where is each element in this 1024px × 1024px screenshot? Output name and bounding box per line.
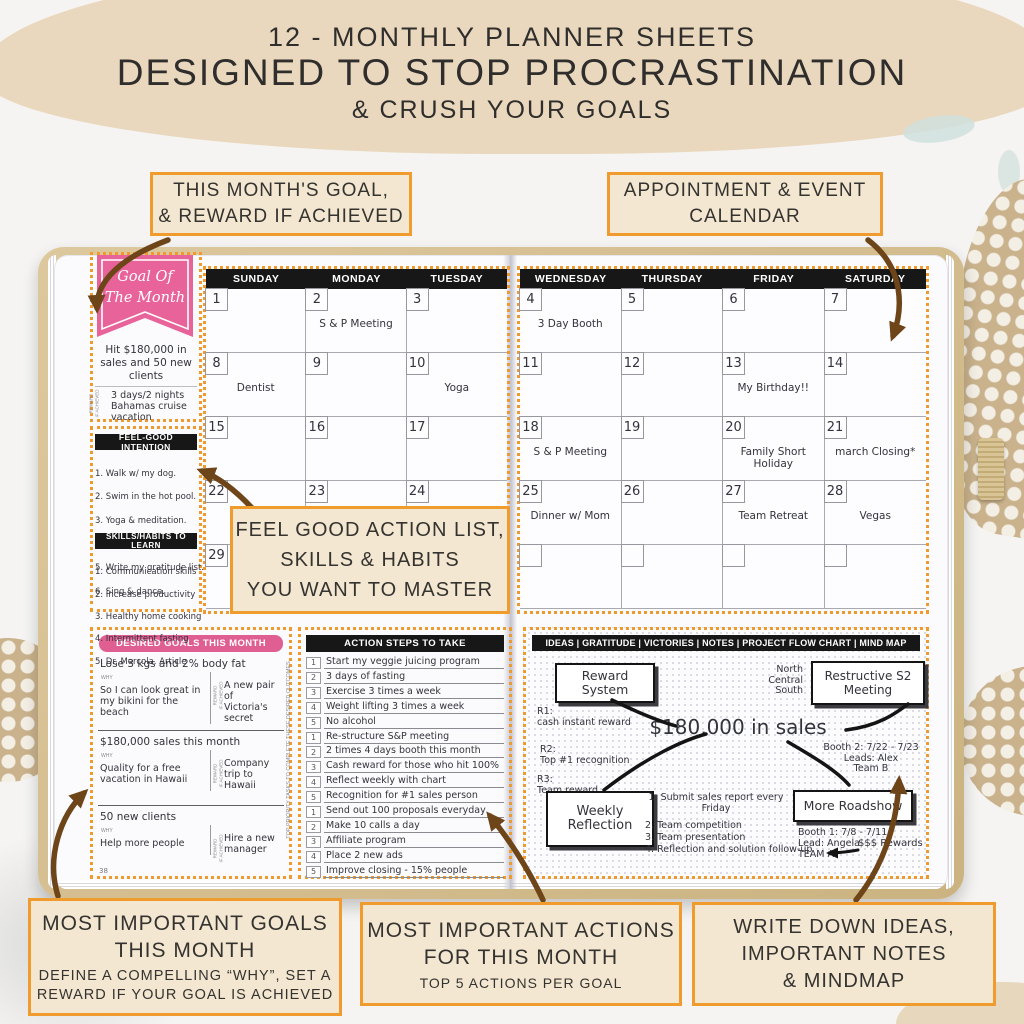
mindmap-note-r2: R2: Top #1 recognition bbox=[540, 745, 630, 766]
day-number bbox=[519, 544, 542, 567]
step-text: 2 times 4 days booth this month bbox=[324, 744, 504, 758]
calendar-cell: 12 bbox=[622, 353, 724, 417]
day-name: FRIDAY bbox=[723, 273, 825, 285]
day-number: 27 bbox=[722, 480, 745, 503]
day-name: TUESDAY bbox=[407, 273, 507, 285]
planner-product-image: 12 - MONTHLY PLANNER SHEETS DESIGNED TO … bbox=[0, 0, 1024, 1024]
calendar-cell bbox=[723, 545, 825, 609]
event-text: Dinner w/ Mom bbox=[522, 510, 619, 522]
day-number: 25 bbox=[519, 480, 542, 503]
step-text: Cash reward for those who hit 100% bbox=[324, 759, 504, 773]
day-number: 10 bbox=[406, 352, 429, 375]
day-number: 3 bbox=[406, 288, 429, 311]
reward-label: REWARD IF ACHIEVED bbox=[213, 832, 224, 866]
step-text: Make 10 calls a day bbox=[324, 819, 504, 833]
callout-title: MOST IMPORTANT GOALS THIS MONTH bbox=[42, 910, 328, 964]
step-number: 2 bbox=[306, 746, 321, 758]
day-number: 6 bbox=[722, 288, 745, 311]
day-number: 15 bbox=[205, 416, 228, 439]
callout-most-important-goals: MOST IMPORTANT GOALS THIS MONTH DEFINE A… bbox=[28, 898, 342, 1016]
page-number: 38 bbox=[99, 867, 108, 875]
calendar-cell: 21march Closing* bbox=[825, 417, 927, 481]
calendar-cell: 3 bbox=[407, 289, 507, 353]
goal-reward: Company trip to Hawaii bbox=[224, 758, 282, 791]
mindmap-center-goal: $180,000 in sales bbox=[623, 715, 853, 739]
step-text: Start my veggie juicing program bbox=[324, 655, 504, 669]
callout-text: APPOINTMENT & EVENT CALENDAR bbox=[624, 178, 866, 230]
reward-label: REWARD IF ACHIEVED bbox=[213, 757, 224, 791]
day-name: MONDAY bbox=[306, 273, 406, 285]
day-number bbox=[722, 544, 745, 567]
callout-title: WRITE DOWN IDEAS, IMPORTANT NOTES & MIND… bbox=[733, 914, 954, 995]
mindmap-box-reward-system: Reward System bbox=[555, 663, 655, 703]
step-number: 4 bbox=[306, 702, 321, 714]
calendar-cell: 17 bbox=[407, 417, 507, 481]
calendar-right-grid: 43 Day Booth 5 6 7 11 12 13My Birthday!!… bbox=[520, 289, 926, 609]
goal-banner-title: Goal Of The Month bbox=[97, 267, 193, 309]
calendar-cell: 8Dentist bbox=[206, 353, 306, 417]
step-number: 3 bbox=[306, 761, 321, 773]
event-text: Vegas bbox=[827, 510, 925, 522]
day-name: THURSDAY bbox=[622, 273, 724, 285]
calendar-cell: 16 bbox=[306, 417, 406, 481]
event-text: Yoga bbox=[409, 382, 505, 394]
action-step-row: 3Exercise 3 times a week bbox=[306, 684, 504, 699]
action-step-row: 4Reflect weekly with chart bbox=[306, 773, 504, 788]
day-number: 16 bbox=[305, 416, 328, 439]
day-number: 9 bbox=[305, 352, 328, 375]
step-number: 1 bbox=[306, 657, 321, 669]
step-number: 1 bbox=[306, 806, 321, 818]
day-number: 22 bbox=[205, 480, 228, 503]
action-steps-header: ACTION STEPS TO TAKE bbox=[306, 635, 504, 652]
step-text: 3 days of fasting bbox=[324, 670, 504, 684]
pen-loop bbox=[978, 438, 1004, 500]
callout-text: FEEL GOOD ACTION LIST, SKILLS & HABITS Y… bbox=[235, 515, 504, 605]
day-number bbox=[824, 544, 847, 567]
goal-why: Help more people bbox=[100, 838, 210, 849]
mindmap-note-plan-line1: 1. Submit sales report every Friday bbox=[641, 793, 791, 814]
day-number: 28 bbox=[824, 480, 847, 503]
action-step-row: 2Make 10 calls a day bbox=[306, 818, 504, 833]
step-number: 5 bbox=[306, 866, 321, 878]
feel-good-item: 2. Swim in the hot pool. bbox=[95, 492, 201, 504]
calendar-cell: 2S & P Meeting bbox=[306, 289, 406, 353]
skills-item: 5. Dr. Mercola. Article bbox=[95, 657, 201, 668]
day-number: 23 bbox=[305, 480, 328, 503]
goal-banner: Goal Of The Month bbox=[97, 255, 193, 337]
goal-reward-text: 3 days/2 nights Bahamas cruise vacation bbox=[111, 391, 201, 423]
calendar-left-day-header: SUNDAY MONDAY TUESDAY bbox=[206, 269, 507, 289]
action-step-row: 5Improve closing - 15% people bbox=[306, 863, 504, 878]
goal-title: 50 new clients bbox=[100, 811, 282, 823]
day-name: WEDNESDAY bbox=[520, 273, 622, 285]
calendar-cell: 11 bbox=[520, 353, 622, 417]
calendar-cell: 5 bbox=[622, 289, 724, 353]
calendar-cell: 6 bbox=[723, 289, 825, 353]
action-steps-panel: ACTION STEPS TO TAKE 1Start my veggie ju… bbox=[298, 627, 512, 879]
calendar-cell: 20Family Short Holiday bbox=[723, 417, 825, 481]
calendar-cell bbox=[520, 545, 622, 609]
event-text: S & P Meeting bbox=[522, 446, 619, 458]
step-text: Weight lifting 3 times a week bbox=[324, 700, 504, 714]
step-text: Recognition for #1 sales person bbox=[324, 789, 504, 803]
calendar-cell: 26 bbox=[622, 481, 724, 545]
step-text: No alcohol bbox=[324, 715, 504, 729]
skills-header: SKILLS/HABITS TO LEARN bbox=[95, 533, 197, 549]
calendar-cell: 15 bbox=[206, 417, 306, 481]
callout-feel-good-list: FEEL GOOD ACTION LIST, SKILLS & HABITS Y… bbox=[230, 506, 510, 614]
mindmap-panel: IDEAS | GRATITUDE | VICTORIES | NOTES | … bbox=[523, 627, 929, 879]
headline-line1: 12 - MONTHLY PLANNER SHEETS bbox=[0, 22, 1024, 53]
calendar-cell: 18S & P Meeting bbox=[520, 417, 622, 481]
action-step-row: 5Recognition for #1 sales person bbox=[306, 788, 504, 803]
action-step-row: 3Affiliate program bbox=[306, 833, 504, 848]
step-text: Exercise 3 times a week bbox=[324, 685, 504, 699]
desired-goal-block: $180,000 sales this month WHY Quality fo… bbox=[93, 731, 289, 805]
step-number: 4 bbox=[306, 776, 321, 788]
day-number: 29 bbox=[205, 544, 228, 567]
calendar-cell: 9 bbox=[306, 353, 406, 417]
day-number: 18 bbox=[519, 416, 542, 439]
skills-item: 4. Intermittent fasting bbox=[95, 634, 201, 645]
desired-goal-block: 50 new clients WHY Help more people REWA… bbox=[93, 806, 289, 870]
goal-text: Hit $180,000 in sales and 50 new clients bbox=[92, 344, 200, 383]
skills-item: 1. Communication skills bbox=[95, 567, 201, 578]
day-name: SUNDAY bbox=[206, 273, 306, 285]
skills-list: 1. Communication skills 2. Increase prod… bbox=[95, 556, 201, 679]
step-number: 4 bbox=[306, 851, 321, 863]
goal-reward-divider bbox=[95, 386, 197, 387]
callout-write-down-ideas: WRITE DOWN IDEAS, IMPORTANT NOTES & MIND… bbox=[692, 902, 996, 1006]
why-label: WHY bbox=[101, 828, 113, 834]
polka-dot-circle-right bbox=[960, 666, 1024, 816]
calendar-cell: 28Vegas bbox=[825, 481, 927, 545]
mindmap-note-rewards: $$$ Rewards bbox=[858, 839, 923, 850]
goal-reward-side-label: REWARD IF ACHIEVED bbox=[89, 386, 100, 422]
day-number: 21 bbox=[824, 416, 847, 439]
event-text: 3 Day Booth bbox=[522, 318, 619, 330]
mindmap-note-regions: North Central South bbox=[745, 665, 803, 697]
action-step-row: 4Weight lifting 3 times a week bbox=[306, 699, 504, 714]
feel-good-item: 1. Walk w/ my dog. bbox=[95, 469, 201, 481]
goal-why: So I can look great in my bikini for the… bbox=[100, 685, 210, 718]
feel-good-header: FEEL-GOOD INTENTION bbox=[95, 434, 197, 450]
day-number bbox=[621, 544, 644, 567]
day-number: 4 bbox=[519, 288, 542, 311]
calendar-cell: 27Team Retreat bbox=[723, 481, 825, 545]
day-number: 20 bbox=[722, 416, 745, 439]
skills-item: 2. Increase productivity bbox=[95, 590, 201, 601]
event-text: S & P Meeting bbox=[308, 318, 403, 330]
callout-most-important-actions: MOST IMPORTANT ACTIONS FOR THIS MONTH TO… bbox=[360, 902, 682, 1006]
step-text: Reflect weekly with chart bbox=[324, 774, 504, 788]
mindmap-note-r1: R1: cash instant reward bbox=[537, 707, 631, 728]
calendar-cell: 14 bbox=[825, 353, 927, 417]
page-stack-bottom bbox=[58, 881, 944, 889]
mindmap-header: IDEAS | GRATITUDE | VICTORIES | NOTES | … bbox=[532, 635, 920, 651]
mindmap-note-plan-rest: 2. Team competition 3. Team presentation… bbox=[645, 820, 812, 856]
day-number: 5 bbox=[621, 288, 644, 311]
step-text: Re-structure S&P meeting bbox=[324, 730, 504, 744]
action-step-row: 5No alcohol bbox=[306, 714, 504, 729]
calendar-cell: 19 bbox=[622, 417, 724, 481]
calendar-right-panel: WEDNESDAY THURSDAY FRIDAY SATURDAY 43 Da… bbox=[517, 266, 929, 614]
day-number: 24 bbox=[406, 480, 429, 503]
calendar-cell bbox=[825, 545, 927, 609]
skills-item: 3. Healthy home cooking bbox=[95, 612, 201, 623]
event-text: Family Short Holiday bbox=[725, 446, 822, 470]
step-number: 1 bbox=[306, 732, 321, 744]
goal-reward: A new pair of Victoria's secret bbox=[224, 680, 282, 724]
day-number: 13 bbox=[722, 352, 745, 375]
action-step-row: 3Cash reward for those who hit 100% bbox=[306, 758, 504, 773]
step-text: Send out 100 proposals everyday bbox=[324, 804, 504, 818]
callout-appointment-calendar: APPOINTMENT & EVENT CALENDAR bbox=[607, 172, 883, 236]
mindmap-box-weekly-reflection: Weekly Reflection bbox=[546, 791, 654, 847]
why-label: WHY bbox=[101, 753, 113, 759]
day-number: 17 bbox=[406, 416, 429, 439]
action-step-row: 23 days of fasting bbox=[306, 669, 504, 684]
action-step-row: 1Start my veggie juicing program bbox=[306, 654, 504, 669]
calendar-cell: 13My Birthday!! bbox=[723, 353, 825, 417]
day-number: 7 bbox=[824, 288, 847, 311]
callout-this-months-goal: THIS MONTH'S GOAL, & REWARD IF ACHIEVED bbox=[150, 172, 412, 236]
day-name: SATURDAY bbox=[825, 273, 927, 285]
step-number: 2 bbox=[306, 821, 321, 833]
calendar-cell: 1 bbox=[206, 289, 306, 353]
headline-line2: DESIGNED TO STOP PROCRASTINATION bbox=[0, 52, 1024, 94]
calendar-right-day-header: WEDNESDAY THURSDAY FRIDAY SATURDAY bbox=[520, 269, 926, 289]
step-text: Place 2 new ads bbox=[324, 849, 504, 863]
goal-why: Quality for a free vacation in Hawaii bbox=[100, 763, 210, 785]
action-step-row: 22 times 4 days booth this month bbox=[306, 744, 504, 759]
event-text: My Birthday!! bbox=[725, 382, 822, 394]
callout-text: THIS MONTH'S GOAL, & REWARD IF ACHIEVED bbox=[158, 178, 403, 230]
event-text: Dentist bbox=[208, 382, 303, 394]
feel-good-item: 3. Yoga & meditation. bbox=[95, 516, 201, 528]
step-number: 5 bbox=[306, 791, 321, 803]
calendar-cell bbox=[622, 545, 724, 609]
calendar-cell: 10Yoga bbox=[407, 353, 507, 417]
callout-subtitle: TOP 5 ACTIONS PER GOAL bbox=[420, 974, 623, 992]
day-number: 14 bbox=[824, 352, 847, 375]
day-number: 19 bbox=[621, 416, 644, 439]
action-step-row: 1Re-structure S&P meeting bbox=[306, 729, 504, 744]
action-steps-side-label: TOP PRIORITY TASKS TO COMPLETE THESE DES… bbox=[287, 650, 295, 850]
day-number: 1 bbox=[205, 288, 228, 311]
reward-label: REWARD IF ACHIEVED bbox=[213, 679, 224, 713]
action-step-row: 4Place 2 new ads bbox=[306, 848, 504, 863]
step-number: 3 bbox=[306, 687, 321, 699]
callout-subtitle: DEFINE A COMPELLING “WHY”, SET A REWARD … bbox=[37, 967, 333, 1005]
day-number: 8 bbox=[205, 352, 228, 375]
day-number: 26 bbox=[621, 480, 644, 503]
day-number: 12 bbox=[621, 352, 644, 375]
calendar-cell: 25Dinner w/ Mom bbox=[520, 481, 622, 545]
step-text: Improve closing - 15% people bbox=[324, 864, 504, 878]
calendar-cell: 43 Day Booth bbox=[520, 289, 622, 353]
callout-title: MOST IMPORTANT ACTIONS FOR THIS MONTH bbox=[367, 917, 674, 971]
mindmap-box-restructive-meeting: Restructive S2 Meeting bbox=[811, 661, 925, 705]
event-text: Team Retreat bbox=[725, 510, 822, 522]
step-number: 5 bbox=[306, 717, 321, 729]
calendar-cell: 7 bbox=[825, 289, 927, 353]
day-number: 11 bbox=[519, 352, 542, 375]
action-step-row: 1Send out 100 proposals everyday bbox=[306, 803, 504, 818]
step-text: Affiliate program bbox=[324, 834, 504, 848]
day-number: 2 bbox=[305, 288, 328, 311]
step-number: 3 bbox=[306, 836, 321, 848]
mindmap-box-more-roadshow: More Roadshow bbox=[793, 790, 913, 822]
step-number: 2 bbox=[306, 672, 321, 684]
headline-line3: & CRUSH YOUR GOALS bbox=[0, 96, 1024, 125]
goal-reward: Hire a new manager bbox=[224, 833, 282, 855]
goal-title: $180,000 sales this month bbox=[100, 736, 282, 748]
mindmap-note-booth2: Booth 2: 7/22 - 7/23 Leads: Alex Team B bbox=[818, 743, 924, 775]
event-text: march Closing* bbox=[827, 446, 925, 458]
